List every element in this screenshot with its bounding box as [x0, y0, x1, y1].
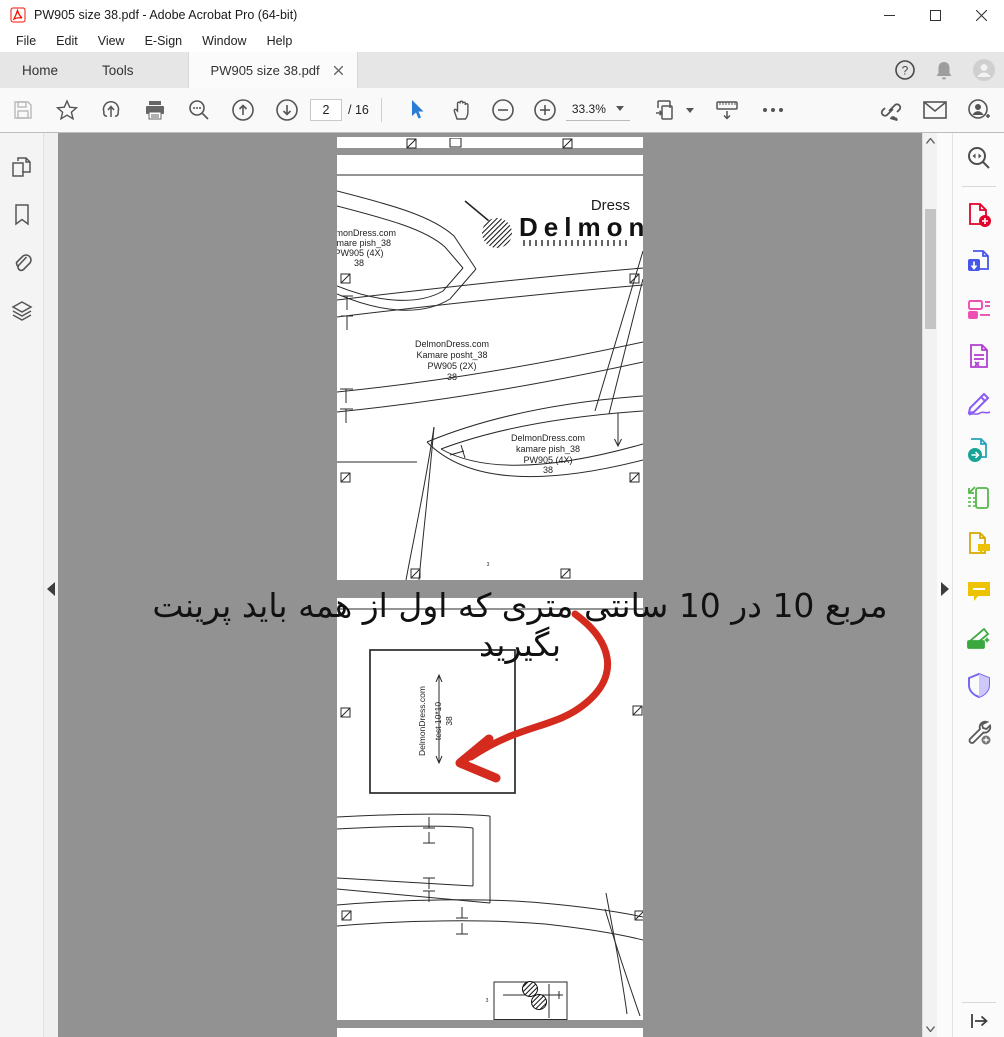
- compress-pdf-icon[interactable]: [966, 484, 992, 510]
- piece-label: Kamare posht_38: [416, 350, 487, 360]
- title-bar: PW905 size 38.pdf - Adobe Acrobat Pro (6…: [0, 0, 1004, 30]
- pdf-page-1-sliver: [337, 137, 643, 148]
- menu-help[interactable]: Help: [257, 32, 303, 50]
- nav-pane-gutter: [44, 133, 58, 1037]
- search-button[interactable]: [184, 95, 214, 125]
- notifications-bell-icon[interactable]: [934, 59, 954, 81]
- tab-document[interactable]: PW905 size 38.pdf: [188, 52, 358, 88]
- page-total-label: / 16: [348, 103, 369, 117]
- page-fit-button[interactable]: [652, 95, 682, 125]
- tab-tools-label: Tools: [102, 63, 134, 78]
- save-button[interactable]: [8, 95, 38, 125]
- send-pdf-icon[interactable]: [966, 437, 992, 463]
- collapse-left-pane-arrow[interactable]: [47, 582, 55, 596]
- search-document-icon[interactable]: [966, 145, 992, 171]
- scan-ocr-icon[interactable]: [966, 625, 992, 651]
- fill-and-sign-icon[interactable]: [966, 390, 992, 416]
- logo-ruler-ticks: [520, 240, 628, 246]
- delmon-logo: Dress Delmon: [465, 197, 643, 248]
- more-tools-icon[interactable]: [966, 719, 992, 745]
- sheet-number: 3: [487, 562, 490, 568]
- pdf-page-4-sliver: [337, 1028, 643, 1037]
- account-avatar-icon[interactable]: [972, 58, 996, 82]
- help-icon[interactable]: ?: [894, 59, 916, 81]
- piece-label: DelmonDress.com: [511, 433, 585, 443]
- page-thumbnails-icon[interactable]: [10, 155, 34, 179]
- zoom-in-icon: [533, 98, 557, 122]
- tab-home-label: Home: [22, 63, 58, 78]
- logo-brand: Delmon: [519, 212, 643, 242]
- star-button[interactable]: [52, 95, 82, 125]
- tab-document-label: PW905 size 38.pdf: [211, 63, 320, 78]
- sheet-number: 3: [486, 998, 489, 1004]
- page-up-icon: [231, 98, 255, 122]
- save-icon: [13, 100, 33, 120]
- maximize-icon: [930, 10, 941, 21]
- piece-label: PW905 (4X): [337, 248, 384, 258]
- scrollbar-thumb[interactable]: [925, 209, 936, 329]
- acrobat-app-icon: [10, 7, 26, 23]
- annotation-text: مربع 10 در 10 سانتی متری که اول از همه ب…: [120, 586, 920, 664]
- select-tool-button[interactable]: [402, 95, 432, 125]
- add-person-icon: [967, 98, 991, 122]
- document-canvas[interactable]: Dress Delmon DelmonDress.com kamare pish…: [58, 133, 922, 1037]
- select-cursor-icon: [407, 99, 427, 121]
- prepare-form-icon[interactable]: [966, 343, 992, 369]
- send-email-button[interactable]: [920, 95, 950, 125]
- close-button[interactable]: [958, 0, 1004, 30]
- scroll-up-icon: [926, 138, 935, 144]
- search-icon: [187, 98, 211, 122]
- tools-pane-gutter: [937, 133, 952, 1037]
- maximize-button[interactable]: [912, 0, 958, 30]
- quick-toolbar: / 16 33.3%: [0, 88, 1004, 133]
- menu-bar: File Edit View E-Sign Window Help: [0, 30, 1004, 52]
- menu-edit[interactable]: Edit: [46, 32, 88, 50]
- help-glyph: ?: [902, 64, 909, 78]
- export-pdf-icon[interactable]: [966, 249, 992, 275]
- email-icon: [923, 100, 947, 120]
- edit-pdf-icon[interactable]: [966, 296, 992, 322]
- share-link-button[interactable]: [876, 95, 906, 125]
- pdf-page-2: Dress Delmon DelmonDress.com kamare pish…: [337, 155, 643, 580]
- close-icon: [976, 10, 987, 21]
- menu-file[interactable]: File: [6, 32, 46, 50]
- window-controls: [866, 0, 1004, 30]
- hand-tool-button[interactable]: [446, 95, 476, 125]
- protect-icon[interactable]: [966, 672, 992, 698]
- minimize-button[interactable]: [866, 0, 912, 30]
- right-tools-rail: [952, 133, 1004, 1037]
- left-navigation-rail: [0, 133, 44, 1037]
- page-fit-icon: [654, 98, 680, 122]
- piece-label: 38: [543, 465, 553, 475]
- attachments-icon[interactable]: [11, 251, 33, 275]
- layers-icon[interactable]: [10, 299, 34, 323]
- piece-label: kamare pish_38: [337, 238, 391, 248]
- ruler-icon: [714, 98, 740, 122]
- test-square-label: test 10*10: [433, 702, 443, 741]
- add-person-button[interactable]: [964, 95, 994, 125]
- piece-label: PW905 (4X): [523, 455, 572, 465]
- tab-close-icon[interactable]: [334, 66, 343, 75]
- vertical-scrollbar[interactable]: [922, 133, 937, 1037]
- piece-label: DelmonDress.com: [337, 228, 396, 238]
- share-link-icon: [878, 98, 904, 122]
- zoom-level-dropdown[interactable]: 33.3%: [566, 100, 630, 121]
- print-icon: [144, 99, 166, 121]
- create-pdf-icon[interactable]: [966, 202, 992, 228]
- window-title: PW905 size 38.pdf - Adobe Acrobat Pro (6…: [34, 8, 297, 22]
- previous-page-button[interactable]: [228, 95, 258, 125]
- share-cloud-icon: [99, 98, 123, 122]
- open-tools-pane-icon[interactable]: [968, 1011, 990, 1031]
- scroll-down-button[interactable]: [923, 1021, 938, 1037]
- menu-esign[interactable]: E-Sign: [135, 32, 193, 50]
- test-square-label: DelmonDress.com: [417, 686, 427, 756]
- page-down-icon: [275, 98, 299, 122]
- piece-label: 38: [354, 258, 364, 268]
- test-square-label: 38: [444, 716, 454, 726]
- piece-label: kamare pish_38: [516, 444, 580, 454]
- main-area: Dress Delmon DelmonDress.com kamare pish…: [0, 133, 1004, 1037]
- menu-window[interactable]: Window: [192, 32, 256, 50]
- rail-separator: [962, 186, 996, 187]
- tab-bar: Home Tools PW905 size 38.pdf ?: [0, 52, 1004, 88]
- page-fit-chevron-icon[interactable]: [686, 108, 694, 113]
- yarn-ball-icon: [482, 218, 512, 248]
- scroll-up-button[interactable]: [923, 133, 938, 149]
- rail-separator: [962, 1002, 996, 1003]
- minimize-icon: [884, 10, 895, 21]
- zoom-out-icon: [491, 98, 515, 122]
- zoom-level-value: 33.3%: [572, 102, 606, 116]
- zoom-in-button[interactable]: [530, 95, 560, 125]
- scroll-down-icon: [926, 1026, 935, 1032]
- piece-label: DelmonDress.com: [415, 339, 489, 349]
- star-icon: [56, 99, 78, 121]
- tabbar-right-icons: ?: [894, 52, 996, 88]
- bookmarks-icon[interactable]: [12, 203, 32, 227]
- zoom-out-button[interactable]: [488, 95, 518, 125]
- expand-right-pane-arrow[interactable]: [941, 582, 949, 596]
- tab-tools[interactable]: Tools: [80, 52, 156, 88]
- menu-view[interactable]: View: [88, 32, 135, 50]
- acrobat-window: PW905 size 38.pdf - Adobe Acrobat Pro (6…: [0, 0, 1004, 1037]
- rail-bottom: [953, 1002, 1004, 1031]
- ruler-button[interactable]: [712, 95, 742, 125]
- print-button[interactable]: [140, 95, 170, 125]
- review-icon[interactable]: [966, 531, 992, 557]
- page-number-input[interactable]: [310, 99, 342, 121]
- toolbar-separator: [381, 98, 382, 122]
- chevron-down-icon: [616, 106, 624, 111]
- yarn-ball-small-icon: [523, 982, 538, 997]
- tab-home[interactable]: Home: [0, 52, 80, 88]
- share-cloud-button[interactable]: [96, 95, 126, 125]
- yarn-ball-small-icon: [532, 995, 547, 1010]
- piece-label: 38: [447, 372, 457, 382]
- hand-icon: [450, 99, 472, 121]
- more-tools-overflow-button[interactable]: [758, 95, 788, 125]
- piece-label: PW905 (2X): [427, 361, 476, 371]
- comment-icon[interactable]: [966, 578, 992, 604]
- next-page-button[interactable]: [272, 95, 302, 125]
